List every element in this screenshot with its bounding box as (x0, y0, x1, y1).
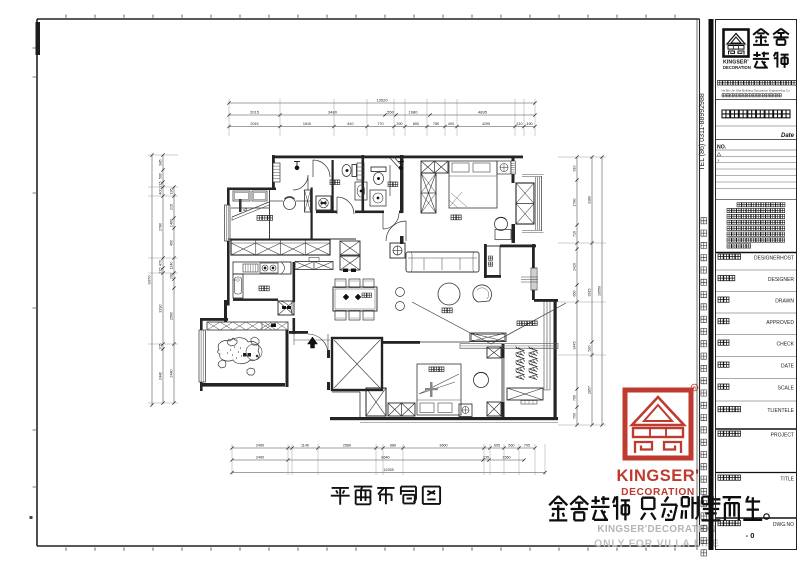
svg-text:2580: 2580 (343, 444, 351, 448)
svg-text:520: 520 (588, 346, 592, 352)
svg-text:DRAWN: DRAWN (775, 299, 794, 305)
svg-text:TLIENTELE: TLIENTELE (767, 408, 794, 414)
svg-text:700: 700 (573, 413, 577, 419)
svg-text:2857: 2857 (588, 386, 592, 394)
svg-text:2490: 2490 (256, 456, 264, 460)
svg-text:660: 660 (573, 291, 577, 297)
svg-text:470: 470 (159, 260, 163, 266)
svg-text:4895: 4895 (478, 110, 488, 115)
svg-text:KINGSER': KINGSER' (616, 467, 699, 485)
svg-text:710: 710 (573, 231, 577, 237)
svg-text:R: R (693, 386, 696, 391)
svg-text:3915: 3915 (588, 289, 592, 297)
svg-text:8640: 8640 (381, 456, 389, 460)
svg-text:660: 660 (508, 444, 514, 448)
svg-text:10550: 10550 (598, 286, 602, 296)
svg-text:705: 705 (524, 444, 530, 448)
svg-text:560: 560 (159, 173, 163, 179)
svg-text:x: x (718, 159, 720, 163)
svg-text:205: 205 (159, 343, 163, 349)
svg-text:3480: 3480 (328, 110, 338, 115)
svg-text:450: 450 (170, 240, 174, 246)
svg-text:DATE: DATE (781, 364, 795, 370)
svg-text:12935: 12935 (383, 468, 393, 472)
svg-text:DESIGNER: DESIGNER (768, 277, 795, 283)
svg-text:Date: Date (781, 133, 795, 139)
svg-text:He Bei Jin She Building Decora: He Bei Jin She Building Decoration Engin… (721, 89, 790, 93)
svg-text:490: 490 (526, 122, 532, 126)
svg-text:2490: 2490 (256, 444, 264, 448)
svg-text:DESIGNERHOST: DESIGNERHOST (754, 256, 794, 262)
svg-text:- 0: - 0 (746, 531, 755, 540)
svg-text:910: 910 (573, 166, 577, 172)
svg-text:780: 780 (433, 122, 439, 126)
svg-text:DECORATION: DECORATION (723, 65, 751, 70)
svg-text:NO.: NO. (717, 145, 727, 151)
svg-text:1980: 1980 (409, 110, 419, 115)
svg-text:550: 550 (387, 110, 394, 115)
svg-text:810: 810 (347, 122, 353, 126)
svg-text:4295: 4295 (482, 122, 490, 126)
svg-text:1420: 1420 (573, 263, 577, 271)
svg-text:KINGSER'DECORATION: KINGSER'DECORATION (597, 524, 716, 535)
svg-text:9370: 9370 (147, 275, 152, 285)
svg-text:605: 605 (494, 444, 500, 448)
svg-text:400: 400 (448, 122, 454, 126)
svg-text:800: 800 (413, 122, 419, 126)
svg-text:2015: 2015 (250, 122, 258, 126)
svg-text:1140: 1140 (170, 262, 174, 270)
svg-text:390: 390 (396, 122, 402, 126)
svg-text:985: 985 (159, 159, 163, 165)
svg-text:TITLE: TITLE (780, 477, 794, 483)
svg-text:1780: 1780 (573, 199, 577, 207)
svg-text:2440: 2440 (170, 369, 174, 377)
svg-text:CHECK: CHECK (776, 342, 794, 348)
svg-text:SCALE: SCALE (778, 386, 795, 392)
svg-text:290: 290 (170, 273, 174, 279)
svg-text:13520: 13520 (376, 98, 388, 103)
svg-text:1140: 1140 (301, 444, 309, 448)
svg-text:215: 215 (159, 181, 163, 187)
svg-text:2015: 2015 (250, 110, 260, 115)
svg-text:3380: 3380 (588, 196, 592, 204)
svg-text:770: 770 (377, 122, 383, 126)
svg-text:700: 700 (573, 395, 577, 401)
svg-text:2560: 2560 (170, 312, 174, 320)
svg-text:310: 310 (516, 122, 522, 126)
svg-text:2440: 2440 (159, 372, 163, 380)
svg-text:PROJECT: PROJECT (771, 433, 794, 439)
svg-text:APPROVED: APPROVED (766, 320, 794, 326)
svg-text:880: 880 (390, 444, 396, 448)
svg-text:400: 400 (159, 188, 163, 194)
svg-text:1610: 1610 (303, 122, 311, 126)
svg-text:3445: 3445 (573, 342, 577, 350)
svg-text:195: 195 (170, 188, 174, 194)
svg-text:1560: 1560 (502, 456, 510, 460)
svg-text:DECORATION: DECORATION (621, 487, 695, 498)
svg-text:215: 215 (159, 267, 163, 273)
svg-text:DWG.NO: DWG.NO (773, 522, 794, 528)
svg-text:215: 215 (170, 204, 174, 210)
svg-text:3190: 3190 (159, 304, 163, 312)
svg-text:1460: 1460 (170, 219, 174, 227)
svg-text:3600: 3600 (439, 444, 447, 448)
svg-text:2780: 2780 (159, 223, 163, 231)
svg-text:TEL (86) 0311-88992988: TEL (86) 0311-88992988 (699, 93, 706, 171)
